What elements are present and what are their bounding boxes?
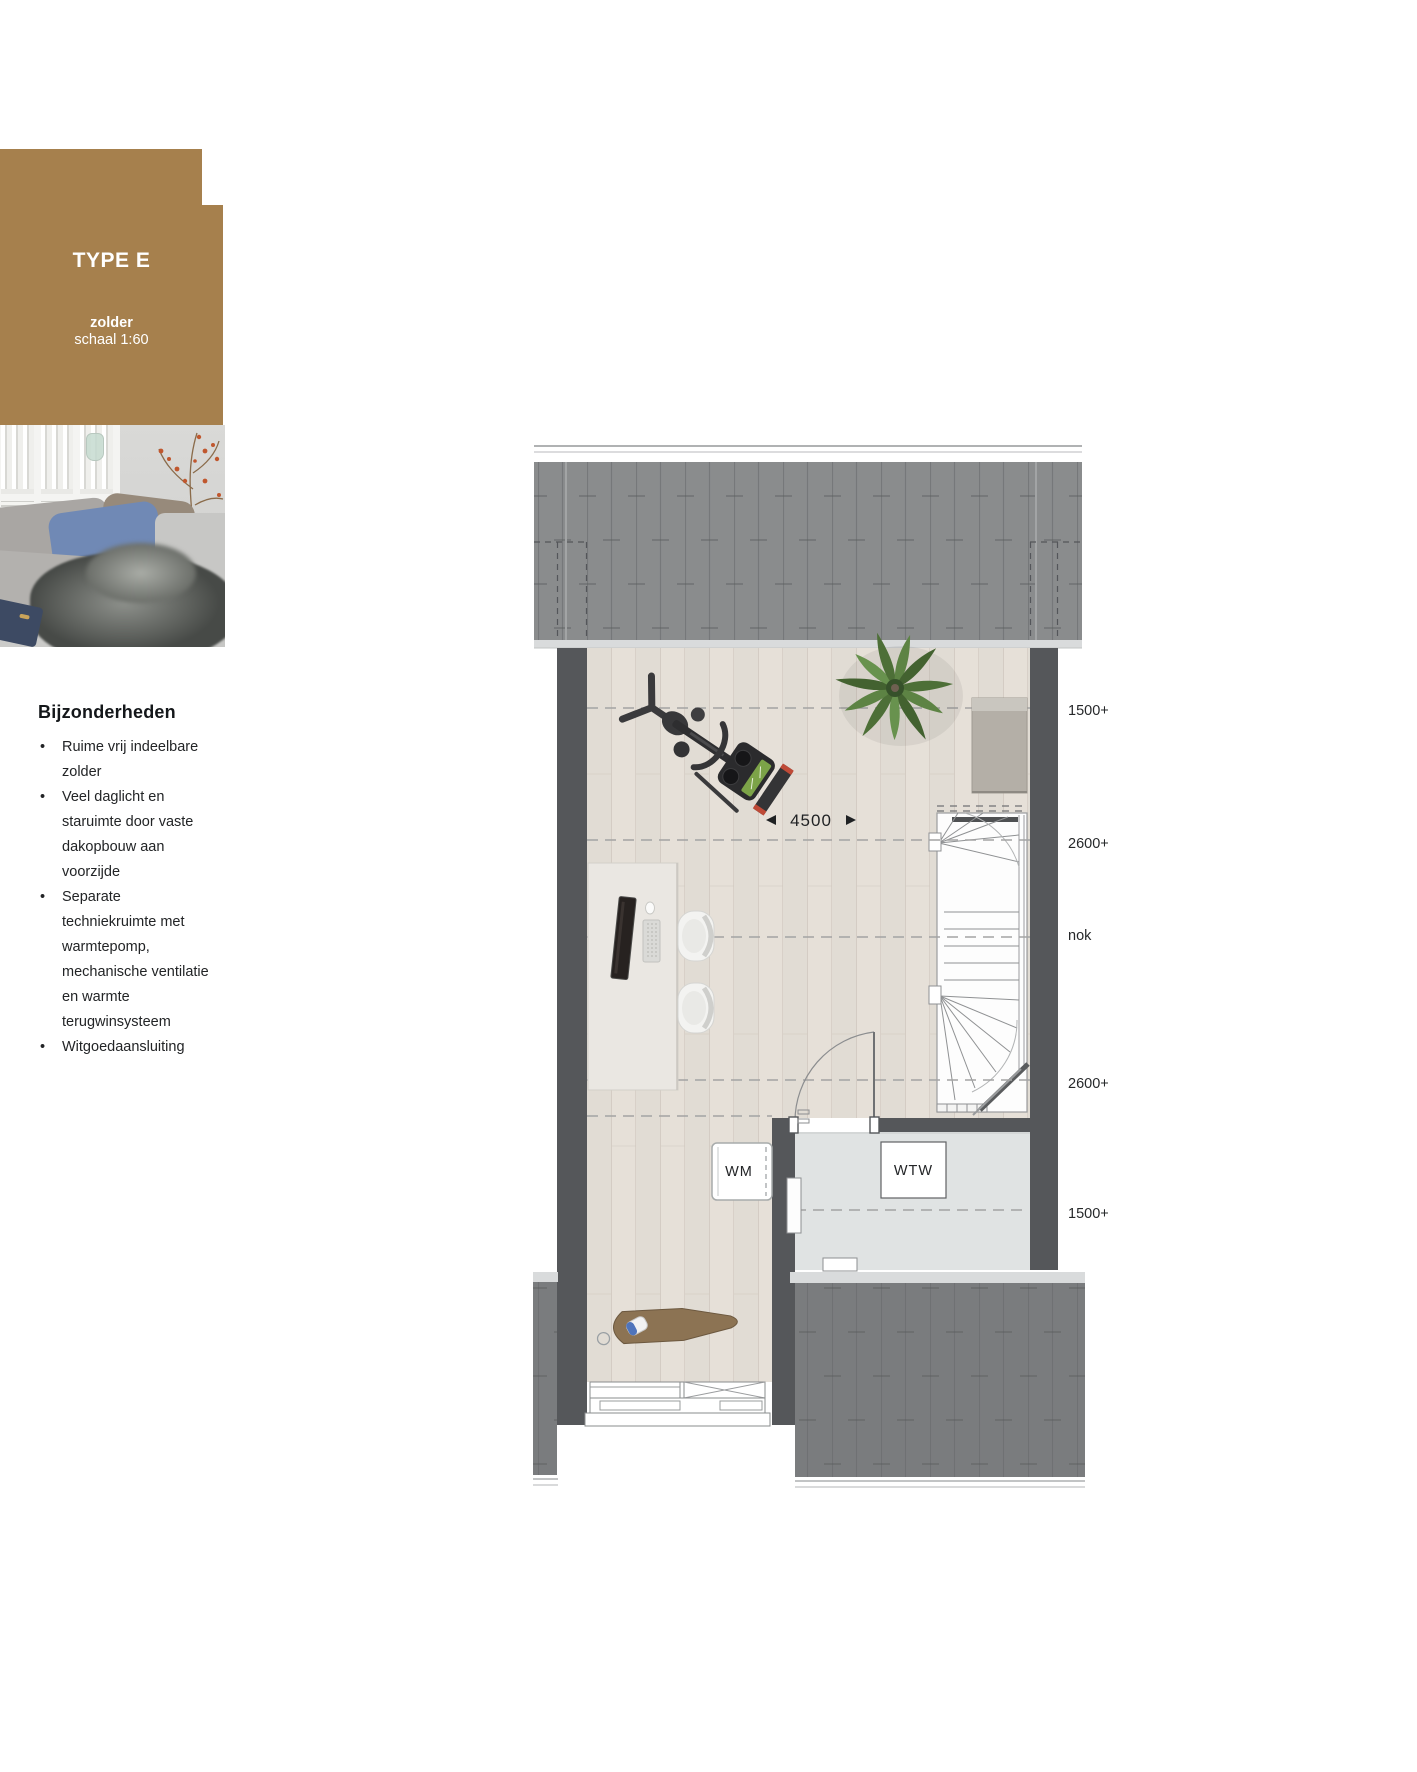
- mouse: [646, 902, 655, 914]
- level-labels: 1500+ 2600+ nok 2600+ 1500+: [1068, 703, 1109, 1222]
- dormer-window: [585, 1382, 770, 1426]
- feature-item: Ruime vrij indeelbare zolder: [38, 735, 210, 785]
- interior-photo: [0, 425, 225, 647]
- chair: [678, 911, 714, 961]
- wtw-label: WTW: [894, 1163, 933, 1179]
- floor-plan: WM WTW: [440, 430, 1120, 1502]
- chair: [678, 983, 714, 1033]
- roof-bottom-right: [790, 1272, 1085, 1487]
- page-title: TYPE E: [0, 249, 223, 273]
- type-header-box: TYPE E zolder schaal 1:60: [0, 149, 223, 425]
- ridge-lines: [534, 446, 1082, 452]
- vase: [86, 433, 104, 461]
- plan-subtitle: zolder schaal 1:60: [0, 315, 223, 349]
- cabinet: [972, 698, 1027, 793]
- wall-technique-top: [873, 1118, 1030, 1132]
- level-label: 2600+: [1068, 836, 1109, 852]
- wall-left: [557, 648, 587, 1425]
- level-label: 1500+: [1068, 703, 1109, 719]
- vent-opening: [823, 1258, 857, 1271]
- wall-right: [1030, 648, 1058, 1270]
- level-label: 1500+: [1068, 1206, 1109, 1222]
- wtw-unit: WTW: [881, 1142, 946, 1198]
- washing-machine: WM: [712, 1143, 772, 1200]
- wall-mid: [772, 1118, 795, 1425]
- duct: [787, 1178, 801, 1233]
- keyboard: [643, 920, 660, 962]
- features-list: Ruime vrij indeelbare zolder Veel daglic…: [38, 735, 210, 1060]
- level-label: nok: [1068, 928, 1092, 944]
- eave-strip-top: [534, 640, 1082, 648]
- roof-bottom-left: [533, 1272, 558, 1485]
- floor-plan-drawing: WM WTW: [440, 430, 1120, 1502]
- header-notch: [202, 149, 223, 205]
- features-panel: Bijzonderheden Ruime vrij indeelbare zol…: [38, 702, 210, 1060]
- feature-item: Witgoedaansluiting: [38, 1035, 210, 1060]
- features-heading: Bijzonderheden: [38, 702, 210, 723]
- fur-throw-highlight: [86, 543, 196, 603]
- floor-name: zolder: [0, 315, 223, 332]
- dimension-label: 4500: [790, 811, 832, 830]
- feature-item: Veel daglicht en staruimte door vaste da…: [38, 785, 210, 885]
- staircase: [929, 806, 1028, 1115]
- desk: [588, 863, 678, 1090]
- feature-item: Separate techniekruimte met warmtepomp, …: [38, 885, 210, 1035]
- wm-label: WM: [725, 1164, 753, 1180]
- brochure-page: TYPE E zolder schaal 1:60: [0, 0, 1417, 1772]
- level-label: 2600+: [1068, 1076, 1109, 1092]
- roof-top: [534, 462, 1082, 648]
- scale-label: schaal 1:60: [74, 332, 148, 348]
- stair-top-tread: [952, 817, 1018, 822]
